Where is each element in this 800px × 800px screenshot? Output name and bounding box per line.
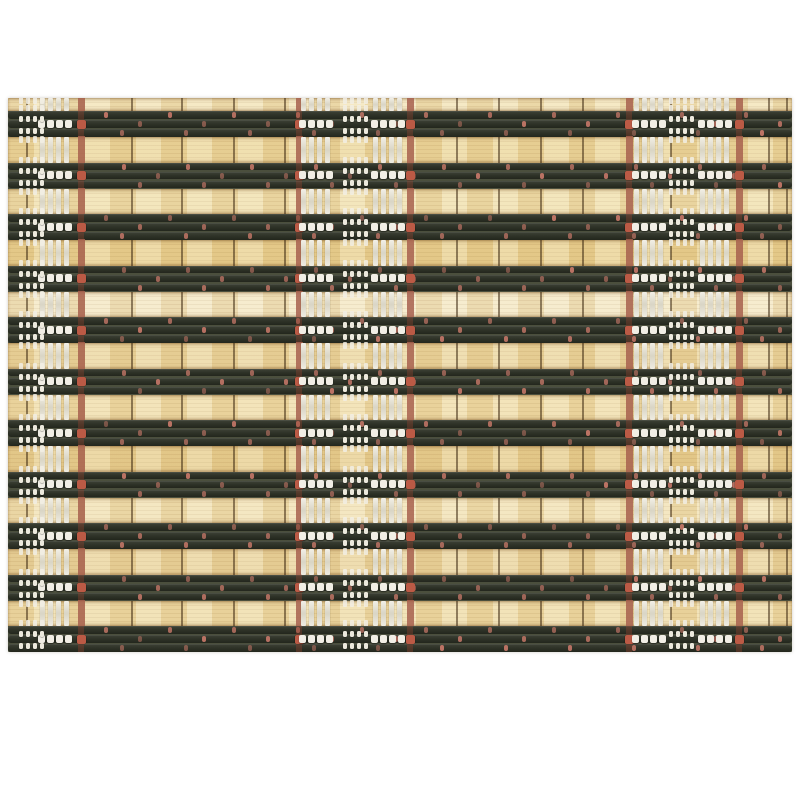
- white-stitch-square: [317, 480, 324, 488]
- warp-thread-line: [181, 343, 183, 369]
- red-weft-dot: [744, 524, 748, 530]
- white-stitch-bar: [56, 240, 61, 266]
- warp-thread-line: [131, 98, 133, 111]
- white-stitch-square: [725, 274, 732, 282]
- white-stitch-tick: [357, 231, 361, 237]
- red-weft-dot: [202, 327, 206, 333]
- red-weft-dot: [778, 388, 782, 394]
- red-weft-dot: [522, 533, 526, 539]
- white-stitch-tick: [350, 98, 354, 104]
- red-weft-dot: [330, 491, 334, 497]
- red-weft-dot: [202, 121, 206, 127]
- red-weft-dot: [778, 636, 782, 642]
- warp-thread-line: [768, 98, 770, 111]
- red-weft-dot: [378, 473, 382, 479]
- red-weft-dot: [220, 173, 224, 179]
- red-weft-dot: [314, 370, 318, 376]
- red-weft-dot: [696, 130, 700, 136]
- white-stitch-bar: [716, 549, 721, 575]
- red-warp-over-slat: [406, 326, 415, 335]
- white-stitch-square: [641, 326, 648, 334]
- white-stitch-bar: [309, 395, 314, 421]
- bamboo-mat-photo: [8, 98, 792, 652]
- white-stitch-tick: [350, 600, 354, 607]
- red-weft-dot: [744, 318, 748, 324]
- white-stitch-bar: [700, 137, 705, 163]
- white-stitch-tick: [350, 580, 354, 586]
- white-stitch-tick: [357, 394, 361, 401]
- red-warp-thread: [626, 445, 633, 473]
- red-weft-dot: [586, 533, 590, 539]
- white-stitch-bar: [325, 189, 330, 215]
- white-stitch-tick: [19, 322, 23, 328]
- red-weft-dot: [778, 224, 782, 230]
- white-stitch-square: [65, 326, 72, 334]
- white-stitch-tick: [19, 231, 23, 237]
- white-stitch-bar: [708, 343, 713, 369]
- white-stitch-tick: [364, 334, 368, 340]
- white-stitch-tick: [676, 188, 680, 195]
- white-stitch-tick: [683, 334, 687, 340]
- warp-thread-line: [284, 343, 286, 369]
- red-weft-dot: [424, 627, 428, 633]
- red-weft-dot: [266, 327, 270, 333]
- red-warp-over-slat: [406, 171, 415, 180]
- red-weft-dot: [138, 224, 142, 230]
- red-weft-dot: [104, 524, 108, 530]
- white-stitch-tick: [669, 477, 673, 483]
- dark-slat-band: [8, 369, 792, 395]
- warp-thread-line: [456, 240, 458, 266]
- red-weft-dot: [634, 370, 638, 376]
- white-stitch-bar: [724, 292, 729, 318]
- warp-thread-line: [456, 498, 458, 524]
- white-stitch-bar: [301, 292, 306, 318]
- white-stitch-bar: [373, 549, 378, 575]
- white-stitch-square: [308, 120, 315, 128]
- white-stitch-square: [65, 171, 72, 179]
- white-stitch-bar: [48, 343, 53, 369]
- white-stitch-bar: [397, 137, 402, 163]
- white-stitch-square: [650, 120, 657, 128]
- red-warp-thread: [736, 239, 743, 267]
- white-stitch-tick: [364, 497, 368, 504]
- white-stitch-square: [398, 480, 405, 488]
- red-weft-dot: [312, 542, 316, 548]
- red-warp-thread: [407, 136, 414, 164]
- warp-thread-line: [456, 549, 458, 575]
- dark-slat: [8, 387, 792, 395]
- white-stitch-bar: [325, 98, 330, 111]
- dark-slat: [8, 284, 792, 292]
- white-stitch-square: [299, 635, 306, 643]
- white-stitch-tick: [690, 291, 694, 298]
- red-weft-dot: [586, 594, 590, 600]
- red-warp-thread: [407, 394, 414, 422]
- white-stitch-bar: [389, 498, 394, 524]
- white-stitch-tick: [343, 322, 347, 328]
- red-warp-over-slat: [735, 223, 744, 232]
- red-weft-dot: [760, 542, 764, 548]
- warp-thread-line: [582, 98, 584, 111]
- white-stitch-square: [632, 274, 639, 282]
- white-stitch-tick: [350, 437, 354, 443]
- red-weft-dot: [376, 130, 380, 136]
- white-stitch-tick: [683, 425, 687, 431]
- white-stitch-bar: [325, 446, 330, 472]
- white-stitch-tick: [33, 489, 37, 495]
- white-stitch-square: [371, 274, 378, 282]
- red-weft-dot: [424, 215, 428, 221]
- white-stitch-tick: [40, 271, 44, 277]
- white-stitch-tick: [690, 425, 694, 431]
- white-stitch-tick: [19, 394, 23, 401]
- white-stitch-bar: [724, 446, 729, 472]
- red-weft-dot: [778, 327, 782, 333]
- white-stitch-bar: [658, 240, 663, 266]
- white-stitch-square: [299, 171, 306, 179]
- white-stitch-bar: [317, 240, 322, 266]
- red-weft-dot: [760, 645, 764, 651]
- warp-thread-line: [233, 292, 235, 318]
- white-stitch-tick: [19, 128, 23, 134]
- white-stitch-tick: [19, 219, 23, 225]
- red-warp-thread: [78, 291, 85, 319]
- red-warp-thread: [78, 342, 85, 370]
- white-stitch-tick: [33, 437, 37, 443]
- red-weft-dot: [522, 285, 526, 291]
- white-stitch-tick: [364, 283, 368, 289]
- white-stitch-tick: [676, 231, 680, 237]
- white-stitch-bar: [48, 292, 53, 318]
- red-weft-dot: [570, 164, 574, 170]
- red-weft-dot: [202, 224, 206, 230]
- white-stitch-tick: [33, 580, 37, 586]
- white-stitch-tick: [33, 540, 37, 546]
- white-stitch-bar: [716, 343, 721, 369]
- white-stitch-tick: [343, 188, 347, 195]
- white-stitch-tick: [676, 425, 680, 431]
- white-stitch-tick: [26, 322, 30, 328]
- white-stitch-bar: [381, 137, 386, 163]
- red-weft-dot: [138, 533, 142, 539]
- warp-thread-line: [540, 549, 542, 575]
- red-weft-dot: [616, 112, 620, 118]
- white-stitch-bar: [56, 549, 61, 575]
- white-stitch-bar: [373, 601, 378, 627]
- white-stitch-tick: [19, 489, 23, 495]
- white-stitch-tick: [19, 528, 23, 534]
- dark-slat: [8, 420, 792, 428]
- white-stitch-bar: [389, 98, 394, 111]
- red-warp-thread: [626, 342, 633, 370]
- white-stitch-tick: [19, 437, 23, 443]
- white-stitch-tick: [26, 394, 30, 401]
- warp-thread-line: [582, 601, 584, 627]
- red-warp-thread: [736, 98, 743, 112]
- white-stitch-tick: [33, 600, 37, 607]
- red-weft-dot: [586, 636, 590, 642]
- white-stitch-tick: [690, 477, 694, 483]
- white-stitch-bar: [716, 446, 721, 472]
- red-weft-dot: [698, 164, 702, 170]
- red-weft-dot: [616, 524, 620, 530]
- white-stitch-bar: [389, 137, 394, 163]
- white-stitch-tick: [676, 631, 680, 637]
- white-stitch-tick: [343, 528, 347, 534]
- white-stitch-bar: [724, 189, 729, 215]
- white-stitch-square: [371, 377, 378, 385]
- white-stitch-bar: [397, 549, 402, 575]
- red-weft-dot: [586, 285, 590, 291]
- white-stitch-tick: [343, 425, 347, 431]
- white-stitch-tick: [26, 334, 30, 340]
- white-stitch-tick: [26, 116, 30, 122]
- white-stitch-tick: [350, 425, 354, 431]
- white-stitch-square: [47, 429, 54, 437]
- red-warp-over-slat: [406, 532, 415, 541]
- white-stitch-tick: [364, 425, 368, 431]
- white-stitch-bar: [716, 189, 721, 215]
- white-stitch-tick: [40, 489, 44, 495]
- white-stitch-square: [725, 223, 732, 231]
- white-stitch-tick: [40, 437, 44, 443]
- white-stitch-square: [308, 326, 315, 334]
- white-stitch-square: [326, 120, 333, 128]
- white-stitch-tick: [357, 239, 361, 246]
- warp-thread-line: [540, 137, 542, 163]
- red-weft-dot: [586, 121, 590, 127]
- white-stitch-tick: [364, 136, 368, 143]
- white-stitch-bar: [642, 137, 647, 163]
- white-stitch-tick: [669, 489, 673, 495]
- red-weft-dot: [586, 327, 590, 333]
- white-stitch-square: [47, 223, 54, 231]
- white-stitch-tick: [690, 322, 694, 328]
- warp-thread-line: [131, 446, 133, 472]
- red-weft-dot: [122, 370, 126, 376]
- white-stitch-bar: [658, 549, 663, 575]
- white-stitch-square: [326, 532, 333, 540]
- red-weft-dot: [778, 182, 782, 188]
- white-stitch-square: [65, 274, 72, 282]
- warp-thread-line: [786, 292, 788, 318]
- white-stitch-square: [707, 326, 714, 334]
- white-stitch-tick: [343, 592, 347, 598]
- dark-slat-band: [8, 317, 792, 343]
- white-stitch-bar: [708, 292, 713, 318]
- white-stitch-square: [725, 429, 732, 437]
- red-weft-dot: [266, 121, 270, 127]
- white-stitch-bar: [56, 343, 61, 369]
- red-warp-over-slat: [406, 635, 415, 644]
- white-stitch-tick: [350, 631, 354, 637]
- white-stitch-tick: [669, 386, 673, 392]
- red-weft-dot: [104, 215, 108, 221]
- white-stitch-tick: [669, 180, 673, 186]
- white-stitch-tick: [676, 394, 680, 401]
- white-stitch-bar: [325, 395, 330, 421]
- warp-thread-line: [181, 137, 183, 163]
- white-stitch-bar: [650, 446, 655, 472]
- red-weft-dot: [440, 233, 444, 239]
- white-stitch-tick: [676, 239, 680, 246]
- warp-thread-line: [233, 498, 235, 524]
- warp-thread-line: [786, 395, 788, 421]
- dark-slat: [8, 317, 792, 325]
- white-stitch-square: [299, 274, 306, 282]
- red-warp-thread: [626, 136, 633, 164]
- white-stitch-tick: [690, 283, 694, 289]
- red-weft-dot: [568, 336, 572, 342]
- red-weft-dot: [266, 182, 270, 188]
- white-stitch-tick: [683, 219, 687, 225]
- white-stitch-bar: [64, 549, 69, 575]
- red-weft-dot: [284, 173, 288, 179]
- white-stitch-tick: [364, 600, 368, 607]
- white-stitch-tick: [669, 580, 673, 586]
- white-stitch-tick: [33, 477, 37, 483]
- white-stitch-tick: [676, 374, 680, 380]
- white-stitch-bar: [381, 189, 386, 215]
- red-warp-thread: [626, 291, 633, 319]
- red-weft-dot: [330, 594, 334, 600]
- white-stitch-tick: [40, 342, 44, 349]
- red-warp-over-slat: [77, 171, 86, 180]
- red-warp-thread: [78, 188, 85, 216]
- white-stitch-tick: [26, 231, 30, 237]
- red-weft-dot: [378, 370, 382, 376]
- dark-slat: [8, 523, 792, 531]
- white-stitch-tick: [19, 168, 23, 174]
- white-stitch-bar: [317, 189, 322, 215]
- white-stitch-tick: [343, 239, 347, 246]
- white-stitch-square: [698, 480, 705, 488]
- white-stitch-tick: [26, 489, 30, 495]
- white-stitch-tick: [690, 219, 694, 225]
- white-stitch-bar: [658, 137, 663, 163]
- white-stitch-square: [317, 223, 324, 231]
- white-stitch-bar: [301, 498, 306, 524]
- white-stitch-tick: [676, 445, 680, 452]
- white-stitch-tick: [357, 540, 361, 546]
- white-stitch-tick: [343, 540, 347, 546]
- red-warp-over-slat: [77, 223, 86, 232]
- white-stitch-tick: [40, 219, 44, 225]
- white-stitch-square: [317, 171, 324, 179]
- white-stitch-tick: [690, 528, 694, 534]
- white-stitch-tick: [364, 386, 368, 392]
- dark-slat: [8, 490, 792, 498]
- white-stitch-square: [632, 120, 639, 128]
- white-stitch-bar: [658, 601, 663, 627]
- white-stitch-bar: [309, 189, 314, 215]
- white-stitch-tick: [357, 219, 361, 225]
- white-stitch-bar: [642, 240, 647, 266]
- white-stitch-tick: [364, 580, 368, 586]
- bamboo-slat: [8, 189, 792, 215]
- red-weft-dot: [266, 388, 270, 394]
- red-weft-dot: [330, 182, 334, 188]
- white-stitch-square: [698, 532, 705, 540]
- white-stitch-tick: [343, 219, 347, 225]
- red-weft-dot: [184, 439, 188, 445]
- white-stitch-square: [659, 583, 666, 591]
- white-stitch-square: [698, 171, 705, 179]
- red-warp-thread: [626, 600, 633, 628]
- red-weft-dot: [184, 645, 188, 651]
- white-stitch-tick: [33, 168, 37, 174]
- white-stitch-square: [707, 635, 714, 643]
- red-weft-dot: [138, 491, 142, 497]
- white-stitch-square: [641, 223, 648, 231]
- warp-thread-line: [284, 498, 286, 524]
- white-stitch-bar: [64, 343, 69, 369]
- red-weft-dot: [458, 224, 462, 230]
- red-weft-dot: [232, 627, 236, 633]
- red-weft-dot: [168, 215, 172, 221]
- white-stitch-bar: [389, 240, 394, 266]
- white-stitch-square: [380, 429, 387, 437]
- red-warp-over-slat: [735, 274, 744, 283]
- red-weft-dot: [604, 173, 608, 179]
- white-stitch-tick: [40, 334, 44, 340]
- white-stitch-tick: [26, 437, 30, 443]
- white-stitch-tick: [683, 394, 687, 401]
- red-weft-dot: [314, 576, 318, 582]
- white-stitch-bar: [301, 446, 306, 472]
- white-stitch-tick: [357, 528, 361, 534]
- white-stitch-square: [389, 120, 396, 128]
- red-weft-dot: [376, 233, 380, 239]
- white-stitch-tick: [676, 528, 680, 534]
- red-weft-dot: [552, 524, 556, 530]
- red-weft-dot: [540, 276, 544, 282]
- white-stitch-tick: [669, 528, 673, 534]
- white-stitch-bar: [64, 395, 69, 421]
- dark-slat-band: [8, 111, 792, 137]
- white-stitch-tick: [40, 643, 44, 649]
- white-stitch-square: [317, 429, 324, 437]
- white-stitch-tick: [19, 271, 23, 277]
- red-weft-dot: [314, 267, 318, 273]
- white-stitch-bar: [716, 292, 721, 318]
- red-weft-dot: [138, 327, 142, 333]
- warp-thread-line: [498, 240, 500, 266]
- red-warp-over-slat: [406, 583, 415, 592]
- red-weft-dot: [220, 276, 224, 282]
- white-stitch-bar: [642, 343, 647, 369]
- red-warp-over-slat: [77, 532, 86, 541]
- red-weft-dot: [250, 370, 254, 376]
- white-stitch-square: [725, 120, 732, 128]
- white-stitch-tick: [40, 600, 44, 607]
- white-stitch-square: [47, 274, 54, 282]
- white-stitch-square: [308, 377, 315, 385]
- red-weft-dot: [552, 421, 556, 427]
- white-stitch-square: [725, 480, 732, 488]
- red-weft-dot: [760, 233, 764, 239]
- white-stitch-square: [632, 532, 639, 540]
- white-stitch-square: [725, 171, 732, 179]
- white-stitch-square: [56, 480, 63, 488]
- white-stitch-bar: [700, 292, 705, 318]
- red-weft-dot: [440, 336, 444, 342]
- white-stitch-tick: [343, 271, 347, 277]
- red-weft-dot: [120, 336, 124, 342]
- red-weft-dot: [458, 285, 462, 291]
- white-stitch-tick: [690, 497, 694, 504]
